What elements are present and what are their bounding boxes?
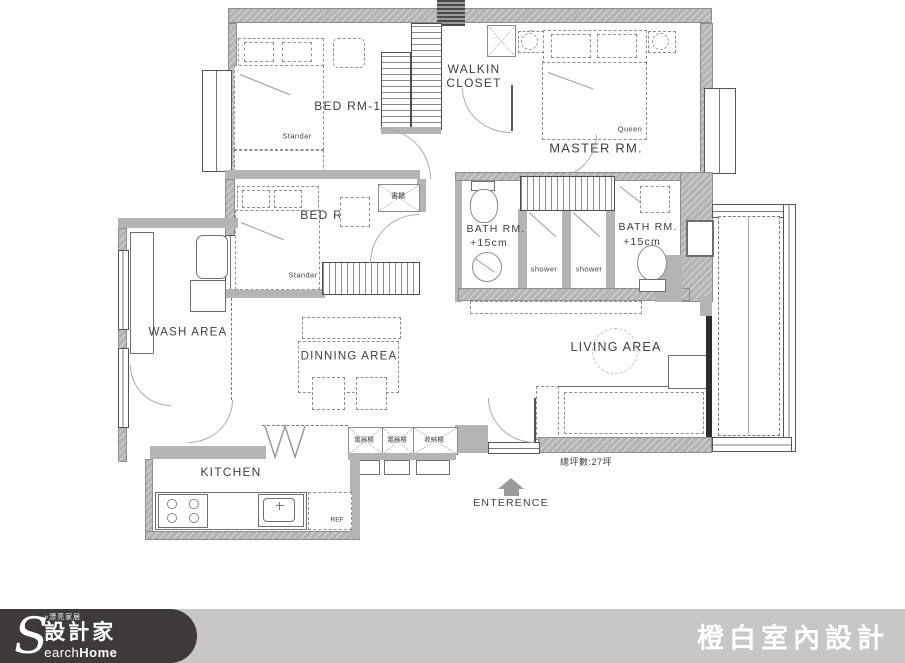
master-bed-size-label: Queen bbox=[618, 126, 643, 135]
entrance-arrow-icon bbox=[498, 478, 524, 489]
dining-chair-1 bbox=[312, 377, 345, 410]
company-name: 橙白室內設計 bbox=[697, 617, 889, 656]
bed1-pillow-1 bbox=[244, 42, 274, 62]
entry-door-arc bbox=[488, 398, 535, 443]
cabinet-label-1: 電器櫃 bbox=[353, 436, 375, 443]
wall-cabinet-base bbox=[348, 453, 456, 460]
searchhome-logo: S »漂亮家居 設計家 earchHome bbox=[0, 609, 197, 663]
logo-brand-en-bold: Home bbox=[79, 645, 117, 660]
wash-door-arc-1 bbox=[130, 365, 171, 406]
balcony-window-right bbox=[783, 204, 796, 452]
master-lamp-right bbox=[652, 33, 669, 50]
wash-partition-line bbox=[231, 298, 232, 400]
refrigerator-label: REF bbox=[331, 516, 344, 523]
window-wash-1 bbox=[118, 250, 129, 330]
wash-door-arc-2 bbox=[188, 400, 233, 443]
wardrobe-hall-left bbox=[381, 52, 411, 130]
wall-wash-top bbox=[118, 218, 238, 228]
room-label-dinning: DINNING AREA bbox=[301, 350, 398, 363]
wall-top bbox=[228, 8, 712, 23]
logo-brand-en-light: earch bbox=[44, 645, 79, 660]
pass-through-symbol bbox=[262, 424, 310, 460]
wall-bed2-bottom bbox=[225, 289, 325, 298]
shower2-door bbox=[573, 212, 600, 237]
toilet-tank-right bbox=[639, 279, 666, 292]
toilet-left bbox=[470, 189, 498, 223]
wall-living-balcony bbox=[706, 315, 712, 439]
bed1-pillow-2 bbox=[282, 42, 312, 62]
wall-living-corner bbox=[700, 296, 712, 316]
master-lamp-left bbox=[521, 33, 538, 50]
closet-shaft-box bbox=[487, 25, 516, 57]
bath-left-note: +15cm bbox=[470, 237, 508, 249]
bed2-size-label: Standar bbox=[288, 272, 317, 281]
living-end-table bbox=[668, 355, 710, 389]
room-label-closet-1: WALKIN bbox=[448, 63, 501, 77]
shower2-label: shower bbox=[576, 266, 603, 275]
wall-kitchen-left bbox=[145, 459, 153, 538]
room-label-kitchen: KITCHEN bbox=[200, 466, 261, 480]
wall-bed1-bed2 bbox=[225, 170, 420, 179]
dining-chair-2 bbox=[356, 377, 387, 410]
bed1-size-label: Standar bbox=[282, 133, 311, 142]
bed2-desk bbox=[340, 197, 370, 227]
logo-brand-chinese: 設計家 bbox=[44, 622, 117, 644]
room-label-bed1: BED RM-1. bbox=[314, 100, 385, 114]
washing-machine bbox=[190, 280, 226, 312]
wall-bathleft-left bbox=[455, 181, 462, 302]
toilet-right bbox=[637, 245, 667, 281]
window-master-right bbox=[704, 88, 736, 174]
window-bed1-left bbox=[202, 70, 232, 172]
tv-cabinet bbox=[470, 301, 642, 314]
stove bbox=[158, 494, 208, 528]
bed2-pillow-1 bbox=[242, 190, 270, 208]
faucet-mark-h bbox=[276, 505, 284, 506]
dining-sideboard bbox=[302, 317, 401, 339]
bed2-door-arc bbox=[370, 214, 419, 263]
cabinet-label-3: 收納櫃 bbox=[423, 436, 445, 443]
total-area-label: 總坪數:27坪 bbox=[560, 455, 612, 468]
closet-door-arc bbox=[462, 88, 511, 133]
bathtub bbox=[196, 235, 228, 279]
wall-entry-left bbox=[455, 425, 488, 453]
entry-threshold bbox=[488, 442, 540, 454]
duct-box bbox=[686, 220, 714, 257]
bed1-nightstand bbox=[333, 38, 365, 68]
cabinet-shelf-3 bbox=[416, 460, 450, 475]
master-pillow-2 bbox=[597, 34, 637, 58]
cabinet-label-2: 電器櫃 bbox=[386, 436, 408, 443]
sofa-side-table bbox=[536, 386, 559, 440]
wall-kitchen-top bbox=[150, 446, 266, 459]
refrigerator bbox=[308, 492, 352, 530]
room-label-wash: WASH AREA bbox=[149, 326, 228, 339]
wardrobe-hall-right bbox=[411, 23, 442, 130]
entrance-label: ENTERENCE bbox=[473, 497, 549, 509]
balcony-center-line bbox=[748, 216, 749, 434]
master-pillow-1 bbox=[551, 34, 591, 58]
entry-door-leaf bbox=[534, 398, 536, 443]
wall-entry-right bbox=[538, 437, 712, 453]
balcony-floor-outline bbox=[718, 216, 780, 436]
room-label-living: LIVING AREA bbox=[570, 340, 661, 354]
logo-s-initial: S bbox=[14, 615, 48, 658]
window-wash-2 bbox=[118, 348, 129, 428]
cabinet-shelf-2 bbox=[384, 460, 410, 475]
bath-linen-wardrobe bbox=[520, 176, 615, 211]
balcony-window-bottom bbox=[712, 437, 792, 452]
faucet-mark-v bbox=[279, 502, 280, 510]
bed2-wardrobe bbox=[322, 262, 420, 295]
room-label-bath-right: BATH RM. bbox=[619, 221, 678, 233]
bed2-pillow-2 bbox=[274, 190, 302, 208]
bed2-cabinet-label: 書櫃 bbox=[391, 193, 405, 201]
wall-kitchen-bottom bbox=[145, 531, 360, 540]
entrance-arrow-stem bbox=[504, 489, 519, 496]
footer-bar: S »漂亮家居 設計家 earchHome 橙白室內設計 bbox=[0, 609, 905, 663]
sofa-cushions bbox=[564, 392, 704, 434]
room-label-bath-left: BATH RM. bbox=[467, 223, 526, 235]
shower1-door bbox=[529, 212, 556, 237]
bath-right-shelf bbox=[640, 186, 670, 213]
floorplan-canvas: BED RM-1. Standar WALKIN CLOSET Queen MA… bbox=[0, 0, 905, 663]
closet-door-frame bbox=[511, 85, 513, 131]
logo-brand-english: earchHome bbox=[44, 645, 117, 660]
shower1-label: shower bbox=[531, 266, 558, 275]
logo-text-column: »漂亮家居 設計家 earchHome bbox=[44, 612, 117, 659]
